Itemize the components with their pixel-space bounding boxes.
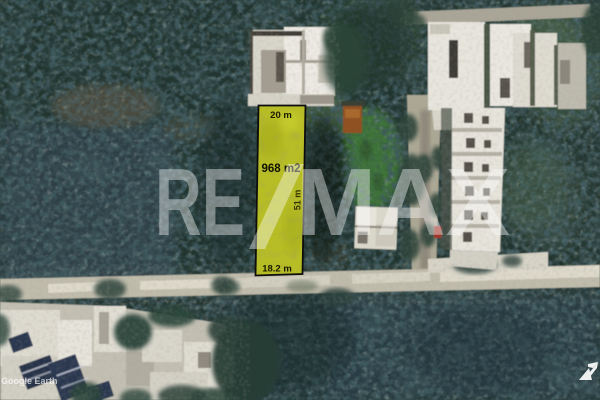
svg-text:RE: RE	[155, 149, 245, 256]
svg-text:18.2 m: 18.2 m	[262, 264, 292, 275]
svg-text:Google Earth: Google Earth	[1, 376, 58, 386]
svg-text:20 m: 20 m	[270, 110, 292, 121]
svg-text:MAX: MAX	[296, 149, 510, 256]
